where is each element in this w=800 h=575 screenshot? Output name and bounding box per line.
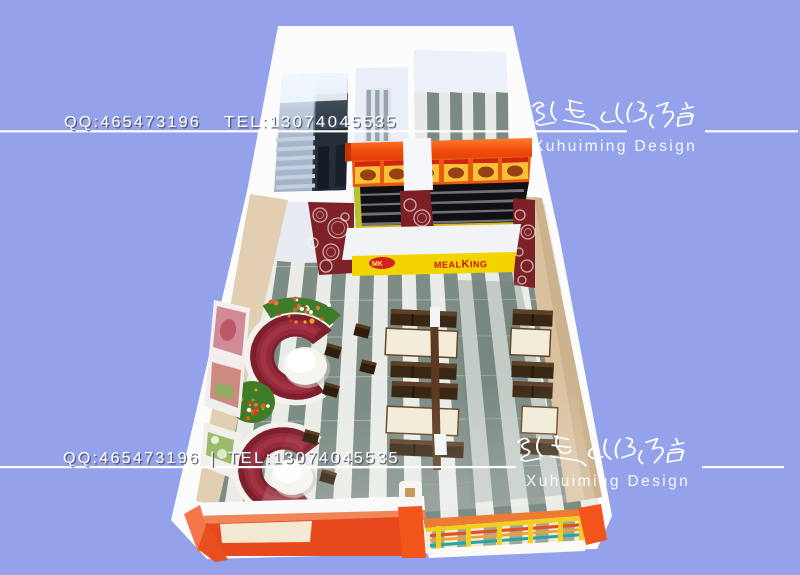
svg-text:MEALKING: MEALKING	[434, 258, 488, 271]
svg-text:Xuhuiming Design: Xuhuiming Design	[526, 473, 690, 490]
svg-text:|: |	[210, 450, 214, 467]
svg-text:QQ:465473196: QQ:465473196	[64, 114, 201, 131]
svg-text:MK: MK	[372, 261, 383, 268]
svg-text:Xuhuiming Design: Xuhuiming Design	[533, 138, 697, 155]
svg-text:TEL:13074045535: TEL:13074045535	[228, 450, 400, 467]
svg-text:QQ:465473196: QQ:465473196	[63, 450, 200, 467]
svg-text:TEL:13074045535: TEL:13074045535	[224, 114, 398, 131]
